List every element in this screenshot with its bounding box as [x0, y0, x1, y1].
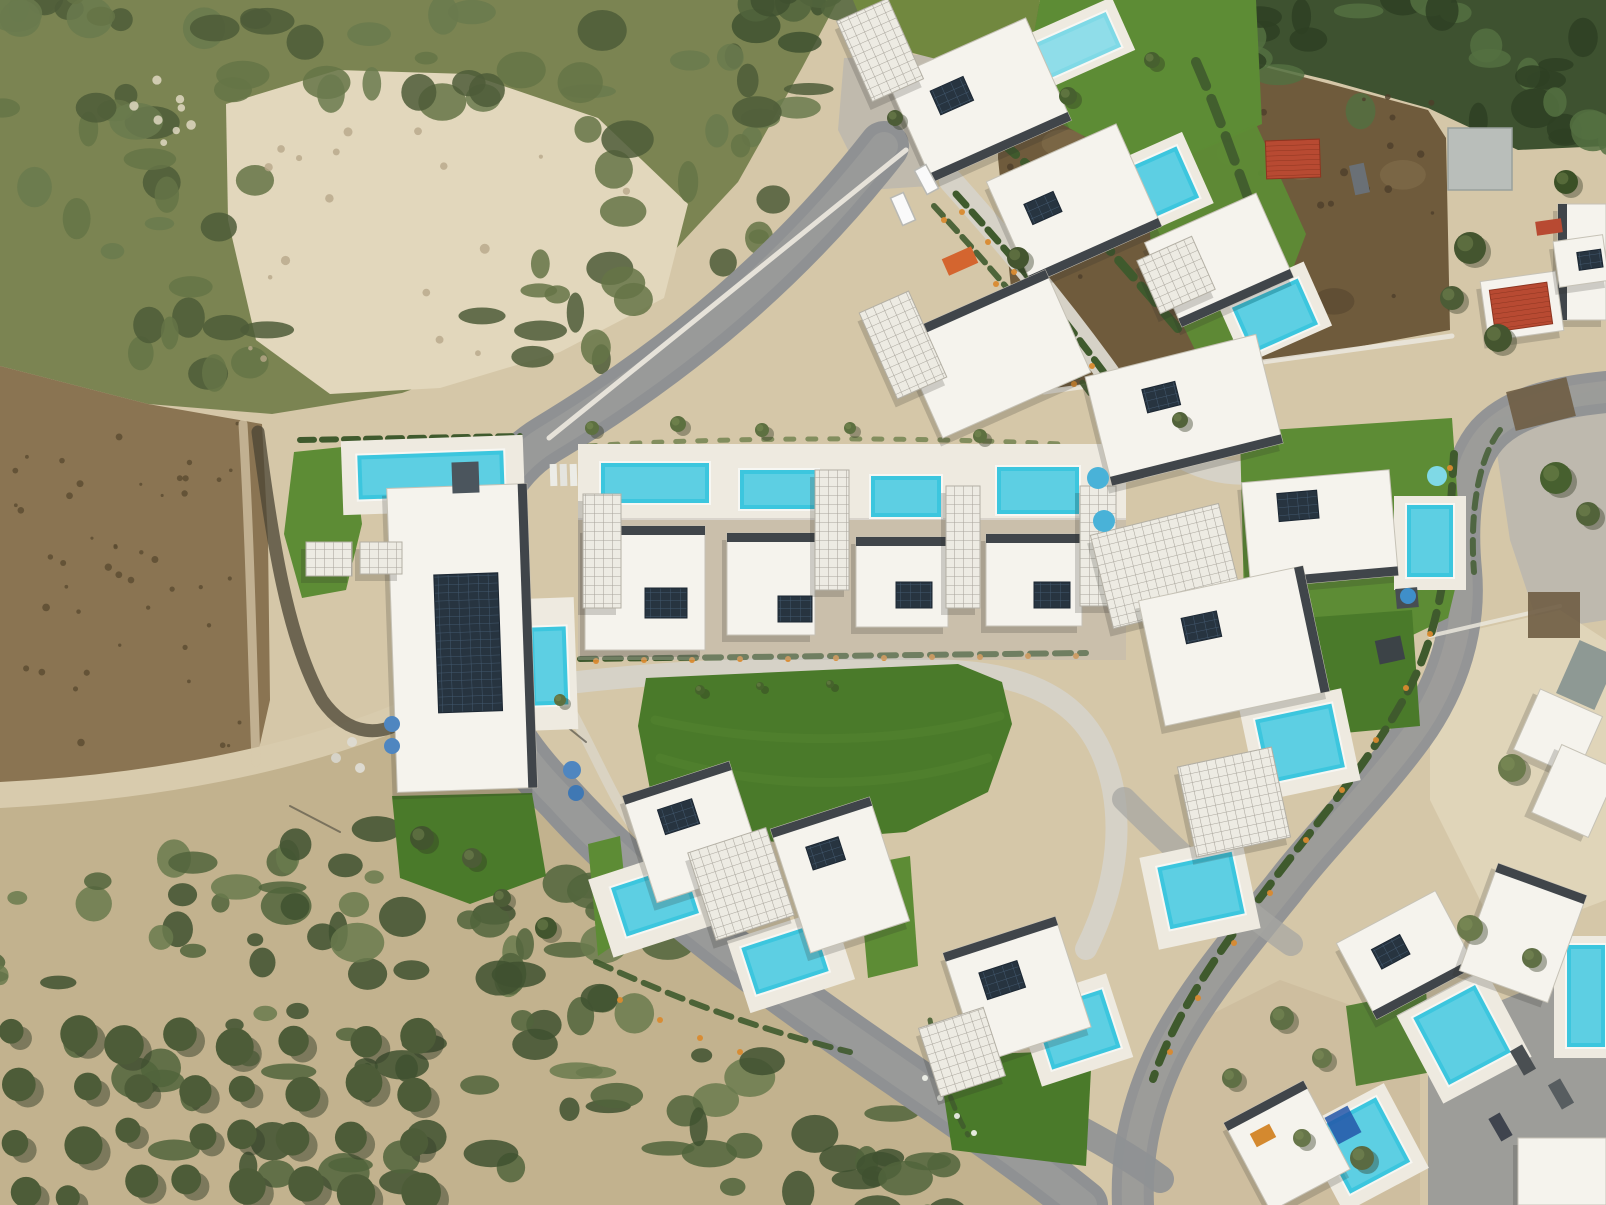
- vegetation-blob: [348, 958, 387, 990]
- roof-parapet-edge: [727, 533, 815, 542]
- vegetation-blob: [544, 285, 570, 303]
- ground-speckle: [151, 556, 158, 563]
- pool-clubhouse: [529, 625, 570, 706]
- aerial-scene-svg: [0, 0, 1606, 1205]
- solar-panel-array: [1034, 582, 1070, 608]
- pergola-c3: [941, 486, 980, 615]
- pool-shimmer: [1571, 949, 1601, 1043]
- flower-dot: [941, 217, 947, 223]
- pool-right-edge: [1566, 944, 1606, 1048]
- flat-white-roof: [1518, 1138, 1606, 1205]
- ground-speckle: [128, 577, 135, 584]
- ground-speckle: [436, 336, 444, 344]
- ground-speckle: [66, 492, 73, 499]
- ground-speckle: [539, 155, 543, 159]
- ground-speckle: [146, 605, 150, 609]
- ground-speckle: [170, 587, 175, 592]
- vegetation-blob: [591, 1083, 643, 1108]
- ground-speckle: [207, 623, 211, 627]
- olive-tree: [2, 1068, 36, 1102]
- tree-highlight: [1224, 1070, 1234, 1080]
- ground-speckle: [296, 155, 302, 161]
- tree-highlight: [757, 683, 761, 687]
- vegetation-blob: [784, 83, 834, 95]
- ground-speckle: [129, 101, 138, 110]
- ground-speckle: [77, 480, 84, 487]
- vegetation-blob: [286, 1003, 309, 1019]
- pool-c4: [996, 466, 1080, 515]
- olive-tree: [335, 1122, 367, 1154]
- olive-tree: [163, 1017, 197, 1051]
- vegetation-blob: [690, 1107, 708, 1146]
- clubhouse: [382, 484, 538, 800]
- vegetation-blob: [581, 329, 611, 365]
- tree-highlight: [1460, 918, 1473, 931]
- ground-speckle: [12, 468, 18, 474]
- ground-speckle: [42, 604, 50, 612]
- tree-highlight: [1487, 327, 1501, 341]
- vegetation-blob: [211, 874, 262, 899]
- tree-highlight: [756, 424, 763, 431]
- tree-highlight: [1457, 235, 1473, 251]
- ground-speckle: [268, 275, 273, 280]
- vegetation-blob: [216, 61, 269, 90]
- solar-panel-array: [1277, 490, 1319, 521]
- ground-speckle: [333, 148, 340, 155]
- ground-speckle: [25, 455, 29, 459]
- sun-lounger-2: [560, 464, 568, 486]
- vegetation-blob: [511, 1010, 534, 1031]
- vegetation-blob: [1515, 65, 1550, 88]
- olive-tree: [397, 1078, 431, 1112]
- vegetation-blob: [84, 872, 112, 890]
- vegetation-blob: [531, 249, 550, 278]
- steel-roof-building: [1448, 128, 1512, 190]
- flower-dot: [1403, 685, 1409, 691]
- solar-panel-array: [778, 596, 812, 622]
- olive-tree: [125, 1165, 158, 1198]
- pool-shimmer: [534, 631, 564, 702]
- tree-highlight: [1556, 172, 1568, 184]
- olive-tree: [227, 1119, 257, 1149]
- red-tile-shed: [1265, 139, 1320, 179]
- ground-speckle: [1317, 202, 1324, 209]
- vegetation-blob: [1469, 49, 1511, 68]
- ground-speckle: [59, 458, 65, 464]
- pergola-c0: [578, 494, 621, 615]
- flower-dot: [1089, 363, 1095, 369]
- tree-highlight: [1578, 504, 1590, 516]
- tree-highlight: [1352, 1148, 1364, 1160]
- flower-dot: [1267, 890, 1273, 896]
- building-bottom-right: [1513, 1138, 1606, 1205]
- vegetation-blob: [516, 928, 534, 960]
- ground-speckle: [1387, 142, 1394, 149]
- solar-panel-array: [1577, 249, 1603, 270]
- ground-speckle: [1328, 201, 1334, 207]
- flower-dot: [657, 1017, 663, 1023]
- ground-speckle: [84, 670, 90, 676]
- ground-speckle: [90, 537, 93, 540]
- vegetation-blob: [339, 892, 369, 917]
- vegetation-blob: [202, 354, 227, 392]
- ground-speckle: [229, 468, 233, 472]
- ground-speckle: [475, 350, 481, 356]
- vegetation-blob: [1334, 3, 1384, 18]
- vegetation-blob: [600, 196, 646, 227]
- tree-highlight: [586, 422, 593, 429]
- tree-highlight: [1314, 1050, 1324, 1060]
- ground-speckle: [23, 665, 29, 671]
- vegetation-blob: [756, 185, 789, 213]
- aerial-photo-villa-resort: [0, 0, 1606, 1205]
- olive-tree: [190, 1123, 217, 1150]
- pergola-club-1: [301, 542, 352, 583]
- vegetation-blob: [1289, 27, 1327, 51]
- brown-pergola-2: [1528, 592, 1580, 638]
- olive-tree: [350, 1026, 382, 1058]
- solar-panel-array: [896, 582, 932, 608]
- vegetation-blob: [492, 962, 546, 988]
- vegetation-blob: [240, 321, 294, 338]
- vegetation-blob: [7, 891, 27, 905]
- ground-speckle: [1431, 211, 1434, 214]
- vegetation-blob: [240, 8, 271, 29]
- tree-highlight: [827, 681, 831, 685]
- ground-speckle: [187, 679, 191, 683]
- vegetation-blob: [581, 984, 619, 1012]
- vegetation-blob: [168, 852, 217, 874]
- ground-speckle: [182, 645, 187, 650]
- olive-tree: [229, 1076, 255, 1102]
- ground-speckle: [1389, 115, 1395, 121]
- vegetation-blob: [161, 316, 179, 349]
- vegetation-blob: [1346, 93, 1376, 129]
- vegetation-blob: [415, 52, 438, 65]
- vegetation-blob: [401, 74, 436, 111]
- ground-speckle: [480, 244, 490, 254]
- solar-panel-array: [645, 588, 687, 618]
- ground-speckle: [160, 139, 167, 146]
- ground-speckle: [260, 355, 267, 362]
- flower-dot: [617, 997, 623, 1003]
- sun-lounger-3: [570, 464, 578, 486]
- pool-c3: [870, 475, 942, 518]
- vegetation-blob: [558, 62, 603, 103]
- ground-speckle: [176, 95, 184, 103]
- vegetation-blob: [201, 213, 237, 242]
- olive-tree: [171, 1165, 201, 1195]
- ground-speckle: [18, 507, 25, 514]
- vegetation-blob: [601, 120, 653, 158]
- vegetation-blob: [670, 50, 710, 70]
- vegetation-blob: [145, 217, 174, 230]
- roof-parapet-edge: [856, 537, 948, 546]
- ground-speckle: [199, 585, 203, 589]
- ground-speckle: [325, 194, 333, 202]
- villa-c4: [981, 534, 1082, 633]
- olive-tree: [400, 1018, 436, 1054]
- olive-tree: [115, 1118, 140, 1143]
- vegetation-blob: [720, 1178, 746, 1196]
- vegetation-blob: [133, 307, 165, 343]
- ground-speckle: [1384, 185, 1392, 193]
- ground-speckle: [118, 643, 121, 646]
- pergola-r2: [1173, 747, 1292, 865]
- vegetation-blob: [574, 116, 601, 143]
- tree-highlight: [537, 919, 548, 930]
- vegetation-blob: [101, 243, 125, 259]
- tree-highlight: [555, 695, 561, 701]
- vegetation-blob: [253, 1006, 277, 1021]
- vegetation-blob: [678, 161, 698, 203]
- olive-tree: [288, 1166, 324, 1202]
- vegetation-blob: [731, 134, 750, 157]
- tree-highlight: [845, 423, 851, 429]
- vegetation-blob: [732, 96, 782, 127]
- ground-speckle: [161, 494, 164, 497]
- vegetation-blob: [0, 0, 41, 37]
- pergola-lattice-roof: [1177, 747, 1290, 857]
- vegetation-blob: [155, 176, 179, 212]
- vegetation-blob: [601, 266, 645, 299]
- vegetation-blob: [247, 933, 263, 946]
- flower-dot: [1373, 737, 1379, 743]
- vegetation-blob: [497, 52, 546, 89]
- round-pool-r0-b: [1093, 510, 1115, 532]
- pool-equip-3: [563, 761, 581, 779]
- vegetation-blob: [149, 925, 174, 950]
- vegetation-blob: [362, 67, 381, 101]
- flower-dot: [985, 239, 991, 245]
- ground-speckle: [220, 742, 226, 748]
- terrace-table-3: [355, 763, 365, 773]
- olive-tree: [400, 1128, 428, 1156]
- vegetation-blob: [124, 148, 177, 170]
- vegetation-blob: [726, 1133, 762, 1159]
- tree-highlight: [1061, 89, 1070, 98]
- vegetation-blob: [87, 7, 115, 26]
- vegetation-blob: [460, 1075, 499, 1094]
- pool-c2: [739, 469, 819, 510]
- vegetation-blob: [365, 870, 384, 883]
- roof-parapet-edge: [986, 534, 1082, 543]
- vegetation-blob: [927, 1152, 960, 1177]
- ground-speckle: [105, 564, 112, 571]
- tree-highlight: [1543, 465, 1559, 481]
- ground-speckle: [177, 475, 183, 481]
- tree-highlight: [1272, 1008, 1284, 1020]
- vegetation-blob: [791, 1115, 838, 1153]
- vegetation-blob: [287, 24, 324, 59]
- ground-speckle: [277, 145, 285, 153]
- round-pool-r1-small: [1400, 588, 1416, 604]
- pergola-lattice-roof: [360, 542, 402, 574]
- vegetation-blob: [514, 321, 567, 341]
- pergola-lattice-roof: [946, 486, 980, 608]
- flower-dot: [971, 1130, 977, 1136]
- pergola-lattice-roof: [306, 542, 352, 576]
- ground-speckle: [238, 721, 242, 725]
- ground-speckle: [422, 289, 430, 297]
- ground-speckle: [139, 483, 142, 486]
- tree-highlight: [1524, 950, 1534, 960]
- ground-speckle: [1385, 94, 1391, 100]
- olive-tree: [2, 1130, 29, 1157]
- tree-highlight: [1174, 414, 1182, 422]
- dry-field-left: [0, 366, 270, 798]
- flower-dot: [993, 281, 999, 287]
- vegetation-blob: [393, 960, 429, 980]
- round-pool-r0-a: [1087, 467, 1109, 489]
- ground-speckle: [77, 739, 85, 747]
- ground-speckle: [173, 127, 180, 134]
- tree-highlight: [696, 686, 701, 691]
- ground-speckle: [227, 744, 230, 747]
- flower-dot: [1427, 631, 1433, 637]
- ground-speckle: [228, 576, 232, 580]
- vegetation-blob: [511, 346, 553, 368]
- flower-dot: [1339, 787, 1345, 793]
- flat-white-roof: [986, 534, 1082, 626]
- ground-speckle: [623, 188, 630, 195]
- vegetation-blob: [739, 1047, 785, 1075]
- villa-c3: [851, 537, 948, 634]
- ground-speckle: [14, 503, 18, 507]
- olive-tree: [229, 1168, 266, 1205]
- vegetation-blob: [231, 347, 269, 379]
- vegetation-blob: [578, 10, 627, 51]
- tree-highlight: [1146, 54, 1154, 62]
- vegetation-blob: [379, 897, 426, 937]
- olive-tree: [104, 1025, 144, 1065]
- vegetation-blob: [168, 883, 197, 906]
- pergola-c2: [810, 470, 849, 597]
- ground-speckle: [187, 460, 192, 465]
- ground-speckle: [116, 433, 123, 440]
- pool-shimmer: [1411, 509, 1449, 573]
- solar-panel-array: [434, 573, 503, 713]
- vegetation-blob: [878, 1161, 933, 1196]
- vegetation-blob: [76, 93, 117, 123]
- ground-speckle: [344, 127, 353, 136]
- flower-dot: [954, 1113, 960, 1119]
- flower-dot: [737, 1049, 743, 1055]
- vegetation-blob: [40, 976, 76, 990]
- ground-speckle: [178, 104, 186, 112]
- ground-speckle: [152, 75, 161, 84]
- vegetation-blob: [576, 1066, 617, 1078]
- ground-speckle: [153, 115, 162, 124]
- vegetation-blob: [567, 292, 584, 332]
- olive-tree: [74, 1073, 102, 1101]
- vegetation-blob: [464, 1140, 519, 1167]
- vegetation-blob: [458, 308, 505, 325]
- vegetation-blob: [1568, 18, 1598, 57]
- ground-speckle: [1340, 168, 1348, 176]
- vegetation-blob: [331, 923, 385, 963]
- vegetation-blob: [1543, 87, 1566, 117]
- ground-speckle: [39, 669, 46, 676]
- flower-dot: [697, 1035, 703, 1041]
- tree-highlight: [1442, 288, 1454, 300]
- vegetation-blob: [1380, 160, 1426, 190]
- flower-dot: [1447, 465, 1453, 471]
- vegetation-blob: [281, 893, 310, 920]
- vegetation-blob: [169, 276, 213, 297]
- ground-speckle: [1428, 100, 1434, 106]
- olive-tree: [216, 1028, 254, 1066]
- tree-highlight: [974, 430, 981, 437]
- sun-lounger-1: [550, 464, 558, 486]
- vegetation-blob: [705, 114, 728, 148]
- ground-speckle: [281, 256, 290, 265]
- pool-shimmer: [875, 480, 937, 513]
- flower-dot: [1195, 995, 1201, 1001]
- ground-speckle: [48, 554, 53, 559]
- ground-speckle: [115, 571, 122, 578]
- ground-speckle: [1392, 294, 1396, 298]
- house-near-red: [1548, 235, 1606, 295]
- ground-speckle: [217, 477, 222, 482]
- vegetation-blob: [317, 74, 345, 113]
- vegetation-blob: [328, 854, 363, 878]
- ground-speckle: [1007, 164, 1014, 171]
- tree-highlight: [1009, 249, 1020, 260]
- pergola-lattice-roof: [583, 494, 621, 608]
- flower-dot: [1231, 940, 1237, 946]
- tree-highlight: [464, 850, 474, 860]
- ground-speckle: [60, 560, 66, 566]
- spa-tub: [451, 462, 479, 494]
- ground-speckle: [248, 346, 252, 350]
- tree-highlight: [412, 828, 424, 840]
- vegetation-blob: [347, 22, 391, 46]
- vegetation-blob: [352, 816, 402, 842]
- olive-tree: [276, 1122, 310, 1156]
- vegetation-blob: [63, 198, 91, 239]
- pool-equip-4: [568, 785, 584, 801]
- ground-speckle: [264, 163, 272, 171]
- flower-dot: [959, 209, 965, 215]
- pool-shimmer: [1001, 471, 1075, 510]
- vegetation-blob: [249, 948, 275, 978]
- flower-dot: [922, 1075, 928, 1081]
- vegetation-blob: [691, 1048, 712, 1062]
- ground-speckle: [186, 120, 196, 130]
- tree-highlight: [672, 418, 680, 426]
- flower-dot: [1303, 837, 1309, 843]
- ground-speckle: [64, 585, 68, 589]
- olive-tree: [179, 1075, 211, 1107]
- vegetation-blob: [559, 1097, 579, 1121]
- vegetation-blob: [717, 44, 744, 71]
- round-pool-r1: [1427, 466, 1447, 486]
- villa-c2: [722, 533, 815, 642]
- tree-highlight: [1295, 1131, 1304, 1140]
- vegetation-blob: [280, 828, 312, 860]
- vegetation-blob: [778, 32, 822, 53]
- ground-speckle: [139, 550, 143, 554]
- ground-speckle: [182, 475, 188, 481]
- pool-shimmer: [744, 474, 814, 505]
- pergola-lattice-roof: [815, 470, 849, 590]
- vegetation-blob: [76, 886, 112, 921]
- ground-speckle: [113, 545, 117, 549]
- flower-dot: [1167, 1049, 1173, 1055]
- olive-tree: [346, 1064, 383, 1101]
- ground-speckle: [1362, 97, 1366, 101]
